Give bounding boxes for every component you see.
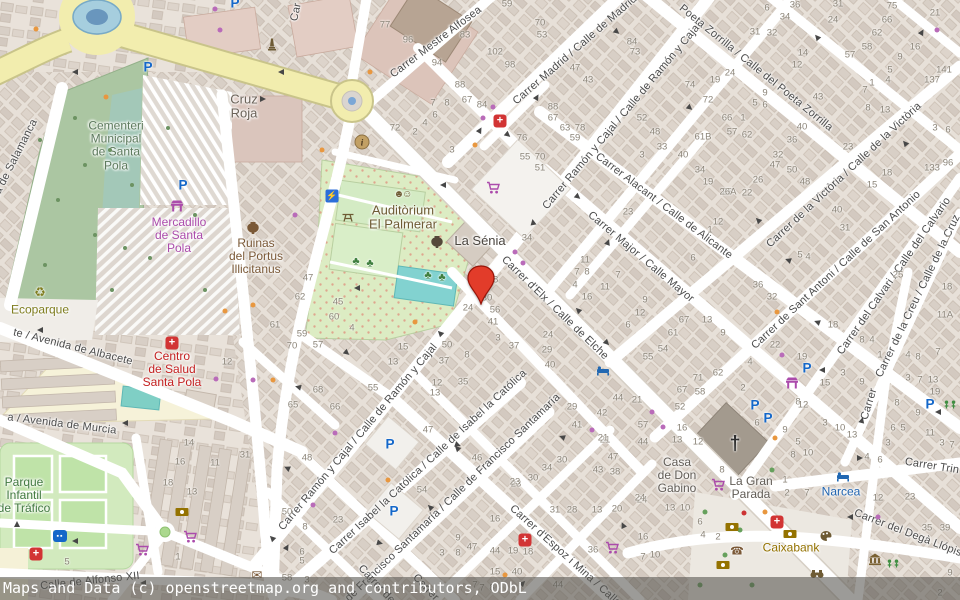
poi-dot [763, 510, 768, 515]
house-number: 5 [900, 423, 905, 434]
house-number: 7 [945, 235, 950, 246]
house-number: 133 [924, 163, 940, 174]
house-number: 1 [877, 350, 882, 361]
house-number: 41 [488, 317, 499, 328]
house-number: 19 [710, 75, 721, 86]
house-number: 7 [804, 488, 809, 499]
house-number: 13 [187, 487, 198, 498]
house-number: 8 [859, 335, 864, 346]
oneway-arrow-icon [604, 238, 612, 246]
poi-dot [723, 553, 728, 558]
oneway-arrow-icon [260, 96, 266, 102]
oneway-arrow-icon [858, 416, 865, 423]
house-number: 23 [333, 515, 344, 526]
oneway-arrow-icon [343, 349, 351, 357]
street-label: Carrer Alacant / Calle de Alicante [593, 151, 735, 262]
oneway-arrow-icon [813, 33, 821, 41]
parking-icon: P [925, 397, 934, 411]
house-number: 102 [487, 47, 503, 58]
house-number: 34 [542, 463, 553, 474]
house-number: 54 [658, 344, 669, 355]
house-number: 15 [398, 342, 409, 353]
house-number: 47 [467, 542, 478, 553]
house-number: 66 [330, 402, 341, 413]
first-aid-icon: + [494, 115, 507, 128]
house-number: 30 [528, 473, 539, 484]
house-number: 26A [720, 187, 737, 198]
first-aid-icon: + [519, 534, 532, 547]
house-number: 3 [939, 438, 944, 449]
house-number: 55 [643, 352, 654, 363]
house-number: 9 [897, 52, 902, 63]
house-number: 34 [780, 12, 791, 23]
house-number: 11A [937, 310, 953, 321]
house-number: 30 [557, 455, 568, 466]
street-label: Carrer Madrid / Calle de Madrid [511, 0, 640, 107]
house-number: 75 [887, 1, 898, 12]
house-number: 10 [650, 550, 661, 561]
house-number: 36 [588, 545, 599, 556]
house-number: 12 [792, 60, 803, 71]
house-number: 2 [715, 532, 720, 543]
bed-icon [836, 470, 850, 482]
house-number: 20 [612, 504, 623, 515]
house-number: 67 [462, 95, 473, 106]
poi-dot [386, 478, 391, 483]
house-number: 55 [368, 383, 379, 394]
house-number: 10 [803, 448, 814, 459]
street-label: Carrer Ramón y Cajal / Calle de Ramón y … [540, 20, 704, 212]
house-number: 12 [222, 357, 233, 368]
house-number: 44 [490, 546, 501, 557]
house-number: 62 [295, 292, 306, 303]
poi-dot [320, 148, 325, 153]
house-number: 6 [754, 418, 759, 429]
house-number: 12 [635, 308, 646, 319]
parking-icon: P [389, 504, 398, 518]
stall-icon [170, 200, 184, 213]
house-number: 7 [615, 270, 620, 281]
house-number: 36 [790, 0, 801, 11]
oneway-arrow-icon [476, 126, 484, 134]
house-number: 4 [349, 323, 354, 334]
house-number: 24 [725, 68, 736, 79]
house-number: 21 [632, 395, 643, 406]
house-number: 9 [915, 408, 920, 419]
poi-dot [108, 148, 112, 152]
house-number: 63 [560, 123, 571, 134]
house-number: 58 [862, 42, 873, 53]
house-number: 45 [333, 297, 344, 308]
poi-dot [56, 198, 60, 202]
house-number: 18 [942, 282, 953, 293]
poi-dot [521, 261, 526, 266]
poi-dot [775, 310, 780, 315]
house-number: 94 [432, 58, 443, 69]
parking-icon: P [178, 178, 187, 192]
house-number: 65 [288, 400, 299, 411]
street-label: Carrer de Francisco Santamaría / Calle d… [317, 391, 563, 600]
house-number: 5 [299, 556, 304, 567]
house-number: 3 [449, 145, 454, 156]
oneway-arrow-icon [935, 409, 941, 415]
house-number: 98 [505, 60, 516, 71]
house-number: 2 [412, 127, 417, 138]
house-number: 53 [537, 30, 548, 41]
palette-icon [820, 530, 833, 542]
picnic-icon [342, 212, 355, 222]
house-number: 41 [572, 420, 583, 431]
oneway-arrow-icon [72, 69, 78, 75]
poi-label: La Sénia [454, 234, 505, 248]
poi-dot [214, 377, 219, 382]
house-number: 76 [517, 133, 528, 144]
street-label: a / Avenida de Murcia [7, 411, 117, 436]
house-number: 12 [798, 400, 809, 411]
tree-icon: ♣ [438, 273, 445, 284]
poi-dot [491, 105, 496, 110]
oneway-arrow-icon [603, 339, 611, 347]
amphora-icon [431, 236, 444, 249]
house-number: 44 [613, 393, 624, 404]
poi-dot [742, 511, 747, 516]
poi-dot [218, 28, 223, 33]
house-number: 40 [797, 122, 808, 133]
oneway-arrow-icon [72, 538, 78, 544]
house-number: 36 [787, 135, 798, 146]
house-number: 47 [303, 273, 314, 284]
oneway-arrow-icon [784, 256, 792, 264]
house-number: 37 [509, 341, 520, 352]
poi-dot [38, 138, 42, 142]
banknote-icon [725, 521, 739, 533]
house-number: 8 [719, 465, 724, 476]
map-canvas[interactable]: Avenida de SalamancaCarrer Mestre Alfose… [0, 0, 960, 600]
monument-icon [267, 38, 277, 51]
poi-label: Ecoparque [11, 303, 69, 316]
house-number: 16 [175, 457, 186, 468]
house-number: 7 [917, 375, 922, 386]
oneway-arrow-icon [278, 69, 284, 75]
house-number: 77 [380, 20, 391, 31]
house-number: 42 [597, 408, 608, 419]
house-number: 46 [472, 453, 483, 464]
poi-label: Narcea [822, 485, 861, 498]
house-number: 48 [302, 453, 313, 464]
oneway-arrow-icon [376, 539, 383, 546]
house-number: 34 [522, 233, 533, 244]
house-number: 8 [865, 103, 870, 114]
poi-dot [223, 309, 228, 314]
house-number: 18 [523, 547, 534, 558]
oneway-arrow-icon [686, 104, 694, 112]
house-number: 4 [572, 280, 577, 291]
house-number: 47 [608, 452, 619, 463]
house-number: 62 [872, 28, 883, 39]
parking-icon: P [763, 411, 772, 425]
house-number: 88 [548, 102, 559, 113]
poi-label: Ruinasdel PortusIllicitanus [229, 237, 283, 277]
house-number: 11 [925, 428, 935, 439]
house-number: 5 [797, 250, 802, 261]
playground-icon [943, 400, 958, 410]
house-number: 9 [782, 425, 787, 436]
house-number: 35 [458, 377, 469, 388]
house-number: 71 [693, 373, 704, 384]
house-number: 3 [885, 438, 890, 449]
playground-icon [886, 559, 901, 569]
parking-icon: P [802, 361, 811, 375]
house-number: 73 [630, 47, 641, 58]
house-number: 52 [637, 113, 648, 124]
house-number: 1 [782, 475, 787, 486]
oneway-arrow-icon [558, 433, 566, 441]
house-number: 3 [439, 548, 444, 559]
house-number: 24 [635, 493, 646, 504]
poi-dot [73, 116, 77, 120]
house-number: 13 [665, 503, 676, 514]
poi-dot [193, 213, 197, 217]
house-number: 31 [833, 0, 844, 10]
house-number: 35 [922, 523, 933, 534]
house-number: 47 [570, 63, 581, 74]
tree-icon: ♣ [424, 271, 431, 282]
house-number: 40 [832, 205, 843, 216]
house-number: 8 [915, 352, 920, 363]
poi-dot [251, 303, 256, 308]
poi-dot [413, 320, 418, 325]
house-number: 23 [510, 477, 521, 488]
house-number: 67 [677, 385, 688, 396]
poi-label: ParqueInfantilde Tráfico [0, 476, 50, 516]
oneway-arrow-icon [613, 28, 621, 36]
house-number: 16 [677, 423, 688, 434]
house-number: 61 [270, 320, 281, 331]
house-number: 29 [567, 402, 578, 413]
house-number: 6 [432, 110, 437, 121]
house-number: 5 [795, 437, 800, 448]
house-number: 39 [940, 523, 951, 534]
house-number: 13 [430, 388, 441, 399]
house-number: 1 [175, 552, 180, 563]
house-number: 1 [740, 113, 745, 124]
house-number: 13 [928, 375, 939, 386]
house-number: 50 [787, 165, 798, 176]
house-number: 13 [592, 505, 603, 516]
house-number: 7 [574, 267, 579, 278]
oneway-arrow-icon [813, 318, 821, 326]
house-number: 55 [520, 152, 531, 163]
house-number: 6 [690, 253, 695, 264]
house-number: 31 [840, 223, 851, 234]
house-number: 3 [822, 418, 827, 429]
house-number: 60 [329, 312, 340, 323]
oneway-arrow-icon [14, 521, 20, 527]
house-number: 8 [584, 267, 589, 278]
house-number: 15 [867, 180, 878, 191]
poi-dot [473, 143, 478, 148]
charge-icon: ⚡ [326, 190, 339, 203]
house-number: 8 [455, 548, 460, 559]
house-number: 8 [302, 522, 307, 533]
banknote-icon [716, 559, 730, 571]
house-number: 3 [932, 123, 937, 134]
poi-dot [703, 510, 708, 515]
cart-icon [135, 544, 149, 557]
poi-dot [590, 428, 595, 433]
house-number: 13 [702, 315, 713, 326]
street-label: Car [288, 2, 304, 22]
house-number: 28 [567, 505, 578, 516]
house-number: 96 [403, 35, 414, 46]
house-number: 52 [675, 402, 686, 413]
house-number: 48 [800, 177, 811, 188]
house-number: 137 [924, 75, 940, 86]
house-number: 67 [679, 315, 690, 326]
house-number: 38 [610, 467, 621, 478]
poi-dot [311, 503, 316, 508]
house-number: 26 [753, 175, 764, 186]
house-number: 25 [893, 270, 904, 281]
poi-dot [333, 431, 338, 436]
house-number: 18 [882, 168, 893, 179]
house-number: 31 [750, 27, 761, 38]
oneway-arrow-icon [619, 521, 627, 529]
oneway-arrow-icon [819, 367, 825, 373]
poi-label: AuditòriumEl Palmerar [369, 204, 437, 233]
parking-icon: P [143, 60, 152, 74]
house-number: 57 [845, 50, 856, 61]
map-marker[interactable] [466, 265, 496, 305]
house-number: 70 [287, 341, 298, 352]
poi-dot [773, 436, 778, 441]
house-number: 70 [535, 152, 546, 163]
house-number: 24 [543, 330, 554, 341]
house-number: 19 [703, 177, 714, 188]
oneway-arrow-icon [918, 28, 926, 36]
house-number: 13 [388, 357, 399, 368]
poi-dot [148, 256, 152, 260]
house-number: 4 [905, 350, 910, 361]
house-number: 7 [935, 347, 940, 358]
house-number: 24 [828, 15, 839, 26]
house-number: 4 [747, 357, 752, 368]
house-number: 66 [722, 113, 733, 124]
oneway-arrow-icon [574, 306, 582, 314]
oneway-arrow-icon [294, 383, 301, 390]
cart-icon [183, 531, 197, 544]
amphora-icon [247, 222, 260, 235]
poi-dot [661, 425, 666, 430]
house-number: 61 [668, 328, 679, 339]
house-number: 44 [638, 437, 649, 448]
house-number: 12 [873, 493, 884, 504]
house-number: 12 [713, 217, 724, 228]
museum-icon [868, 553, 882, 566]
house-number: 67 [548, 113, 559, 124]
house-number: 7 [430, 98, 435, 109]
banknote-icon [783, 528, 797, 540]
house-number: 9 [642, 295, 647, 306]
house-number: 62 [713, 368, 724, 379]
attribution-bar: Maps and Data (c) openstreetmap.org and … [0, 577, 960, 600]
house-number: 19 [508, 546, 519, 557]
poi-dot [293, 213, 298, 218]
poi-dot [166, 126, 170, 130]
masks-icon: ☻☺ [394, 190, 411, 200]
poi-dot [650, 410, 655, 415]
house-number: 43 [593, 465, 604, 476]
house-number: 40 [678, 150, 689, 161]
house-number: 43 [813, 92, 824, 103]
house-number: 40 [512, 567, 523, 578]
street-label: Avenida de Salamanca [0, 117, 40, 227]
house-number: 2 [740, 383, 745, 394]
oneway-arrow-icon [530, 219, 537, 226]
house-number: 13 [880, 105, 891, 116]
house-number: 4 [869, 335, 874, 346]
church-icon: † [729, 434, 740, 454]
house-number: 72 [390, 123, 401, 134]
house-number: 23 [623, 207, 634, 218]
house-number: 13 [847, 430, 858, 441]
house-number: 37 [439, 356, 450, 367]
house-number: 9 [720, 328, 725, 339]
poi-dot [93, 233, 97, 237]
house-number: 21 [930, 8, 941, 19]
house-number: 18 [163, 478, 174, 489]
poi-dot [780, 353, 785, 358]
first-aid-icon: + [771, 516, 784, 529]
poi-dot [34, 27, 39, 32]
house-number: 54 [417, 485, 428, 496]
poi-label: Casade DonGabino [658, 456, 697, 496]
house-number: 62 [742, 130, 753, 141]
house-number: 48 [650, 127, 661, 138]
house-number: 14 [184, 438, 195, 449]
house-number: 3 [905, 373, 910, 384]
house-number: 9 [859, 377, 864, 388]
poi-dot [110, 288, 114, 292]
house-number: 29 [542, 345, 553, 356]
house-number: 70 [535, 18, 546, 29]
house-number: 8 [464, 350, 469, 361]
house-number: 3 [495, 333, 500, 344]
house-number: 23 [905, 492, 916, 503]
house-number: 59 [502, 0, 513, 10]
poi-label: CementeriMunicipalde SantaPola [88, 120, 143, 173]
poi-label: Mercadillode SantaPola [152, 216, 207, 256]
house-number: 8 [894, 398, 899, 409]
poi-dot [481, 116, 486, 121]
oneway-arrow-icon [857, 455, 863, 461]
oneway-arrow-icon [436, 329, 444, 337]
house-number: 33 [657, 142, 668, 153]
house-number: 83 [460, 30, 471, 41]
house-number: 22 [742, 188, 753, 199]
tree-icon: ♣ [366, 259, 373, 270]
oneway-arrow-icon [37, 327, 43, 333]
cart-icon [711, 479, 725, 492]
house-number: 6 [762, 100, 767, 111]
house-number: 23 [843, 142, 854, 153]
house-number: 13 [672, 435, 683, 446]
house-number: 47 [423, 425, 434, 436]
house-number: 6 [625, 320, 630, 331]
poi-dot [123, 246, 127, 250]
phone-icon: ☎ [730, 547, 744, 558]
oneway-arrow-icon [847, 514, 853, 520]
